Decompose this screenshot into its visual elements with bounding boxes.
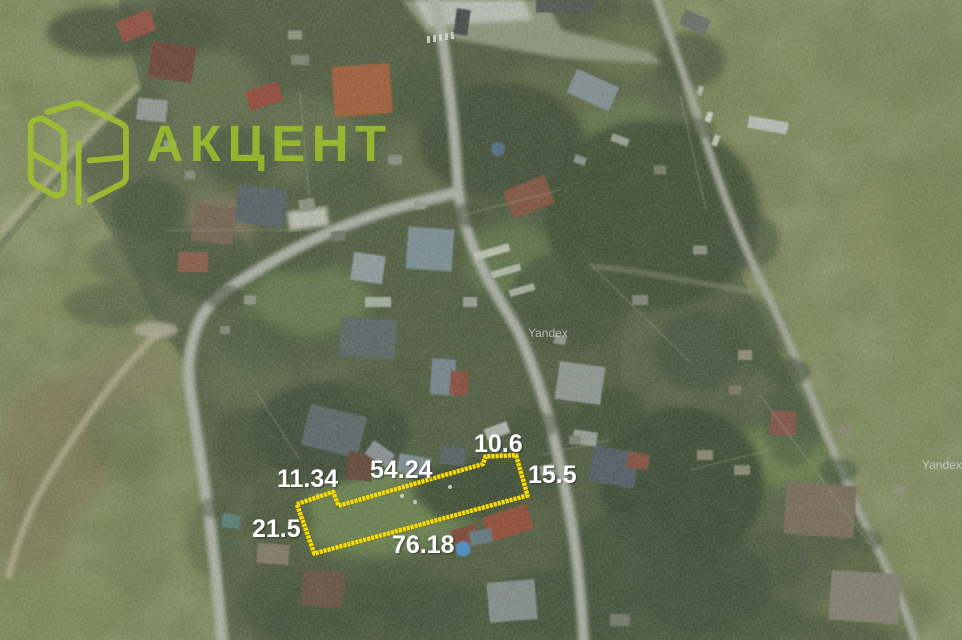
svg-text:10.6: 10.6 [474, 430, 523, 458]
svg-text:Yandex: Yandex [922, 458, 962, 472]
svg-text:Yandex: Yandex [528, 326, 568, 340]
svg-text:АКЦЕНТ: АКЦЕНТ [147, 115, 393, 172]
svg-text:11.34: 11.34 [277, 465, 338, 493]
svg-text:76.18: 76.18 [392, 531, 455, 559]
svg-text:54.24: 54.24 [370, 456, 433, 484]
svg-text:21.5: 21.5 [252, 515, 301, 543]
svg-text:15.5: 15.5 [528, 461, 577, 489]
